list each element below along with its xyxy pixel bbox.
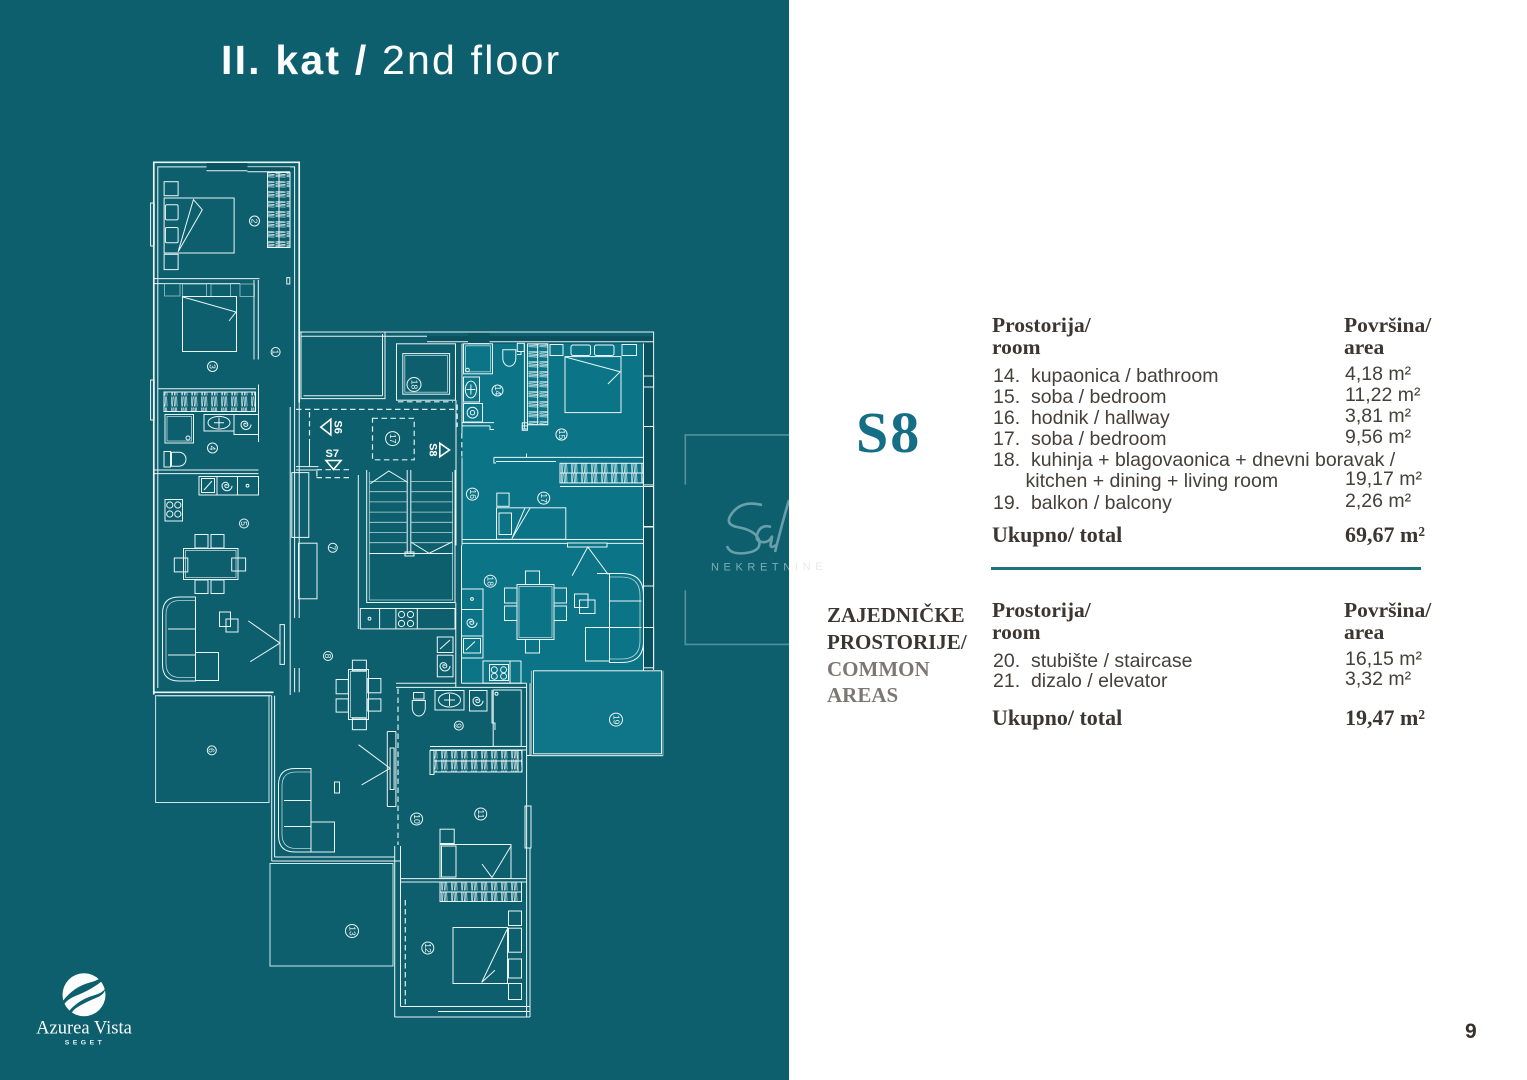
svg-text:6: 6 [207, 748, 217, 753]
svg-text:1: 1 [270, 350, 280, 355]
svg-text:15: 15 [557, 430, 567, 440]
svg-text:S7: S7 [326, 448, 339, 460]
svg-text:2: 2 [249, 219, 259, 224]
svg-text:7: 7 [328, 545, 338, 550]
svg-text:10: 10 [412, 814, 422, 824]
svg-text:18: 18 [409, 380, 419, 390]
svg-text:S8: S8 [426, 443, 438, 456]
svg-text:3: 3 [207, 364, 217, 369]
svg-text:19: 19 [611, 715, 621, 725]
svg-text:16: 16 [468, 489, 478, 499]
svg-text:17: 17 [388, 434, 398, 444]
svg-text:17: 17 [539, 493, 549, 503]
svg-text:Azurea Vista: Azurea Vista [36, 1019, 132, 1039]
svg-text:NEKRETNI: NEKRETNI [711, 562, 789, 574]
svg-text:18: 18 [486, 576, 496, 586]
svg-text:S6: S6 [331, 420, 343, 433]
svg-text:11: 11 [476, 810, 486, 819]
svg-text:13: 13 [347, 926, 357, 936]
svg-text:14: 14 [493, 386, 503, 396]
svg-text:8: 8 [323, 654, 333, 659]
svg-text:9: 9 [454, 723, 464, 728]
svg-text:4: 4 [207, 446, 217, 451]
svg-text:12: 12 [423, 943, 433, 953]
svg-text:5: 5 [239, 521, 249, 526]
svg-text:SEGET: SEGET [65, 1040, 106, 1047]
